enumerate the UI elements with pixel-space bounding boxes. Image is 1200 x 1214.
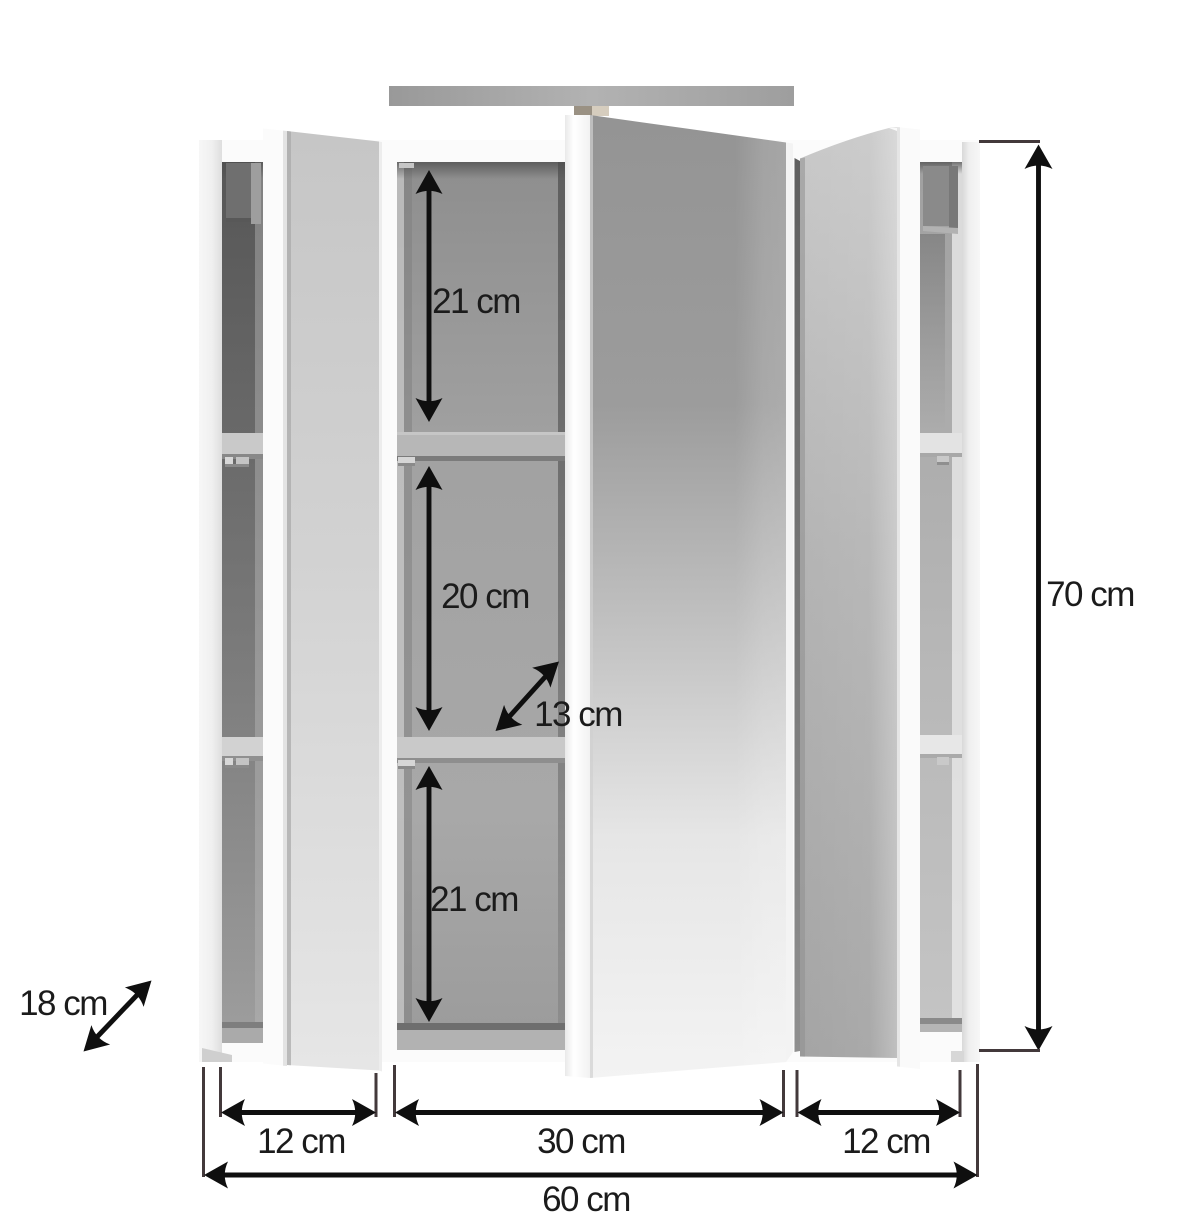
svg-text:21 cm: 21 cm bbox=[432, 282, 520, 321]
svg-text:70 cm: 70 cm bbox=[1046, 575, 1134, 614]
svg-text:18 cm: 18 cm bbox=[19, 984, 107, 1023]
svg-text:60 cm: 60 cm bbox=[542, 1180, 630, 1214]
svg-text:30 cm: 30 cm bbox=[537, 1122, 625, 1161]
svg-text:12 cm: 12 cm bbox=[842, 1122, 930, 1161]
svg-text:13 cm: 13 cm bbox=[534, 695, 622, 734]
svg-text:20 cm: 20 cm bbox=[441, 577, 529, 616]
svg-text:21 cm: 21 cm bbox=[430, 880, 518, 919]
svg-text:12 cm: 12 cm bbox=[257, 1122, 345, 1161]
